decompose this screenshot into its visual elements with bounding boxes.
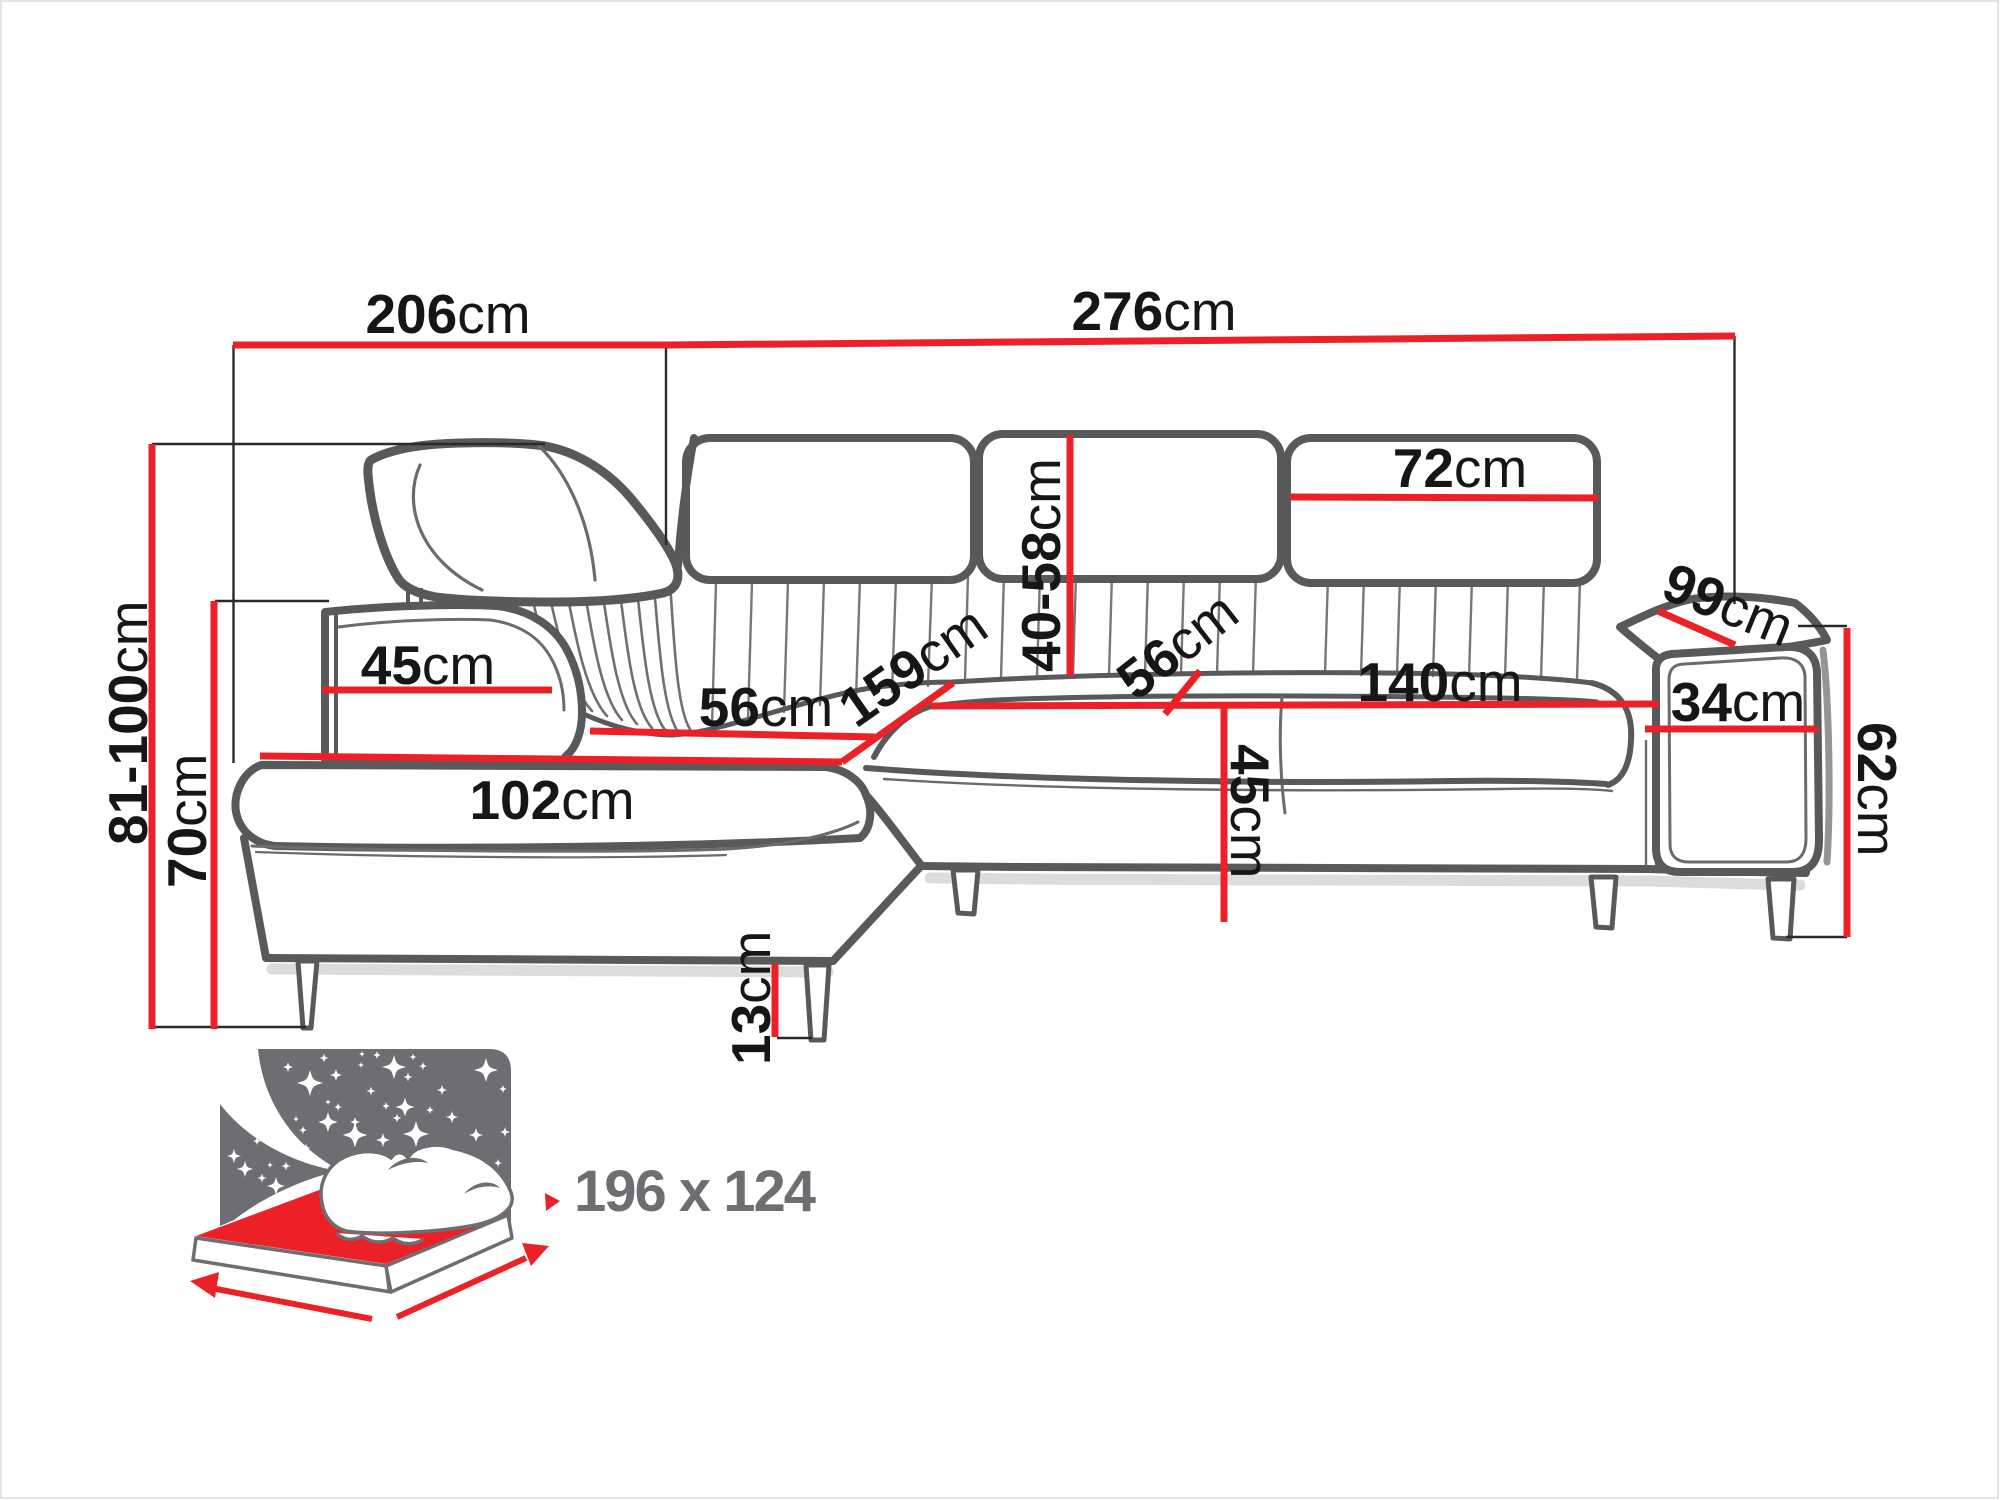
svg-text:140cm: 140cm (1357, 651, 1522, 713)
svg-text:72cm: 72cm (1393, 437, 1528, 499)
svg-text:70cm: 70cm (156, 753, 218, 888)
svg-text:34cm: 34cm (1671, 671, 1806, 733)
svg-text:45cm: 45cm (361, 634, 496, 696)
svg-text:40-58cm: 40-58cm (1010, 458, 1072, 672)
svg-text:62cm: 62cm (1846, 722, 1908, 857)
svg-text:196 x 124: 196 x 124 (574, 1159, 816, 1224)
svg-text:56cm: 56cm (699, 676, 834, 738)
svg-text:276cm: 276cm (1071, 280, 1236, 342)
svg-text:13cm: 13cm (720, 930, 782, 1065)
svg-text:206cm: 206cm (365, 283, 530, 345)
svg-text:102cm: 102cm (469, 769, 634, 831)
svg-text:45cm: 45cm (1219, 744, 1281, 879)
svg-text:81-100cm: 81-100cm (97, 600, 159, 845)
